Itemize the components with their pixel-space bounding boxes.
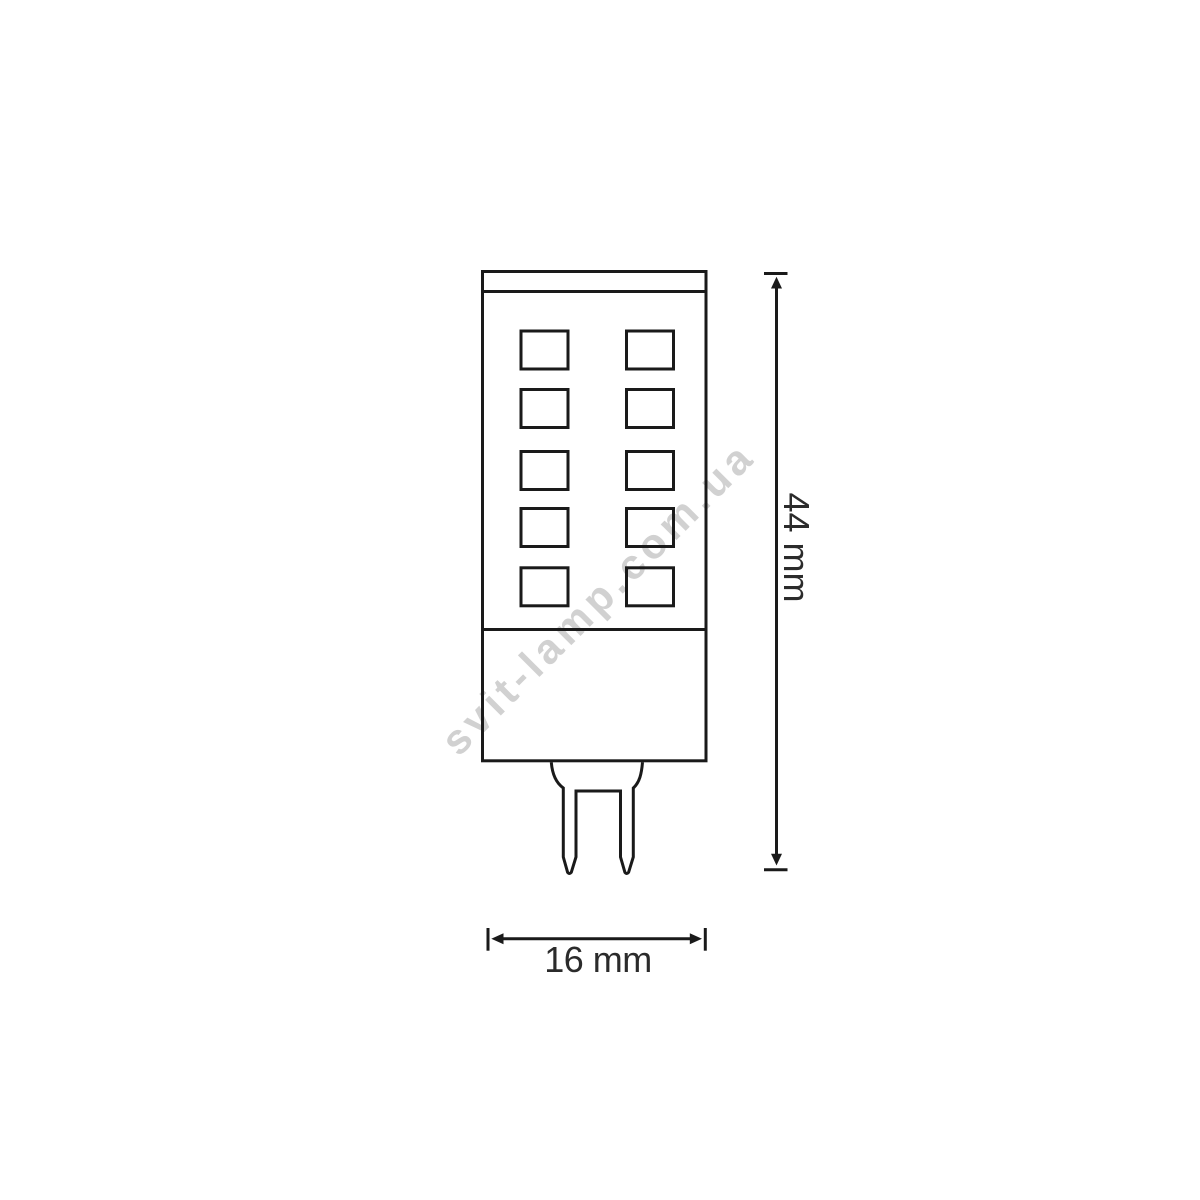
svg-text:16 mm: 16 mm: [544, 939, 652, 980]
svg-text:44 mm: 44 mm: [776, 492, 817, 602]
